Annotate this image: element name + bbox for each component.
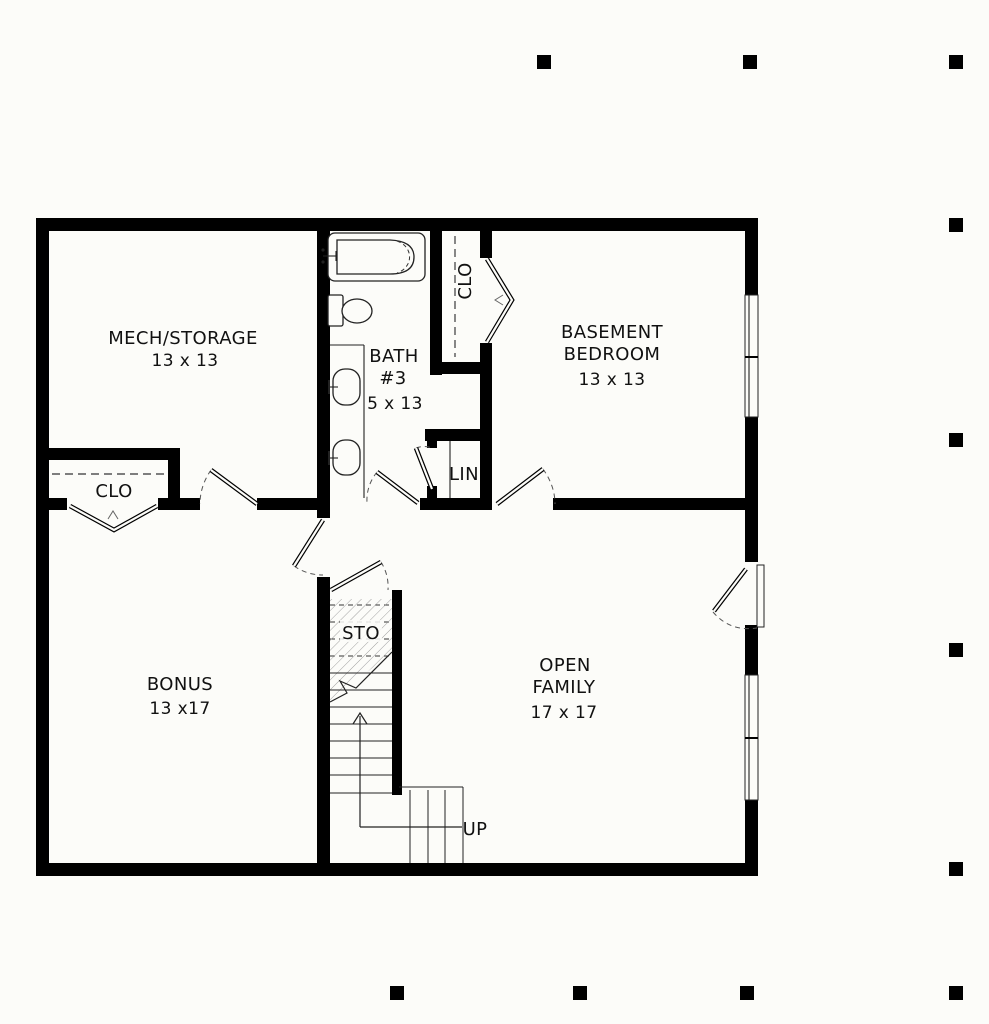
label-family-line1: OPEN xyxy=(539,655,590,676)
under-stair-hatch xyxy=(330,599,392,702)
column-marker xyxy=(740,986,754,1000)
exterior-door-family xyxy=(713,565,764,629)
walls xyxy=(36,218,758,876)
door-stairs xyxy=(331,562,388,590)
label-family-line2: FAMILY xyxy=(533,677,596,698)
dims-mech-storage: 13 x 13 xyxy=(152,351,219,371)
dims-bonus: 13 x17 xyxy=(149,699,210,719)
column-marker xyxy=(573,986,587,1000)
floor-plan-drawing: MECH/STORAGE 13 x 13 BATH #3 5 x 13 BASE… xyxy=(0,0,989,1024)
column-marker xyxy=(949,55,963,69)
door-mech-storage xyxy=(200,470,257,504)
column-marker xyxy=(537,55,551,69)
door-bonus xyxy=(294,520,323,575)
column-marker xyxy=(949,986,963,1000)
window-family xyxy=(745,675,758,800)
column-marker xyxy=(949,218,963,232)
label-bath-line1: BATH xyxy=(369,346,418,367)
door-linen xyxy=(416,447,432,490)
label-bath-line2: #3 xyxy=(379,368,406,389)
door-bedroom xyxy=(497,469,555,504)
dims-bath: 5 x 13 xyxy=(367,394,423,414)
column-markers xyxy=(390,55,963,1000)
label-linen: LIN xyxy=(449,464,479,485)
column-marker xyxy=(390,986,404,1000)
label-sto: STO xyxy=(342,623,380,644)
label-mech-storage: MECH/STORAGE xyxy=(108,328,258,349)
dims-bedroom: 13 x 13 xyxy=(579,370,646,390)
sink xyxy=(329,369,360,405)
column-marker xyxy=(949,433,963,447)
column-marker xyxy=(949,862,963,876)
label-closet-left: CLO xyxy=(95,481,132,502)
sink xyxy=(329,440,360,475)
label-closet-bedroom: CLO xyxy=(455,262,476,299)
toilet xyxy=(328,295,372,326)
label-bedroom-line2: BEDROOM xyxy=(564,344,661,365)
floor-plan-sheet: MECH/STORAGE 13 x 13 BATH #3 5 x 13 BASE… xyxy=(0,0,989,1024)
room-labels: MECH/STORAGE 13 x 13 BATH #3 5 x 13 BASE… xyxy=(95,262,663,840)
label-up: UP xyxy=(463,819,488,840)
window-bedroom xyxy=(745,295,758,417)
column-marker xyxy=(949,643,963,657)
door-bath xyxy=(367,472,418,503)
stair-direction-arrow xyxy=(353,713,462,827)
bathtub xyxy=(321,233,425,281)
column-marker xyxy=(743,55,757,69)
dims-family: 17 x 17 xyxy=(531,703,598,723)
label-bedroom-line1: BASEMENT xyxy=(561,322,664,343)
label-bonus: BONUS xyxy=(147,674,213,695)
